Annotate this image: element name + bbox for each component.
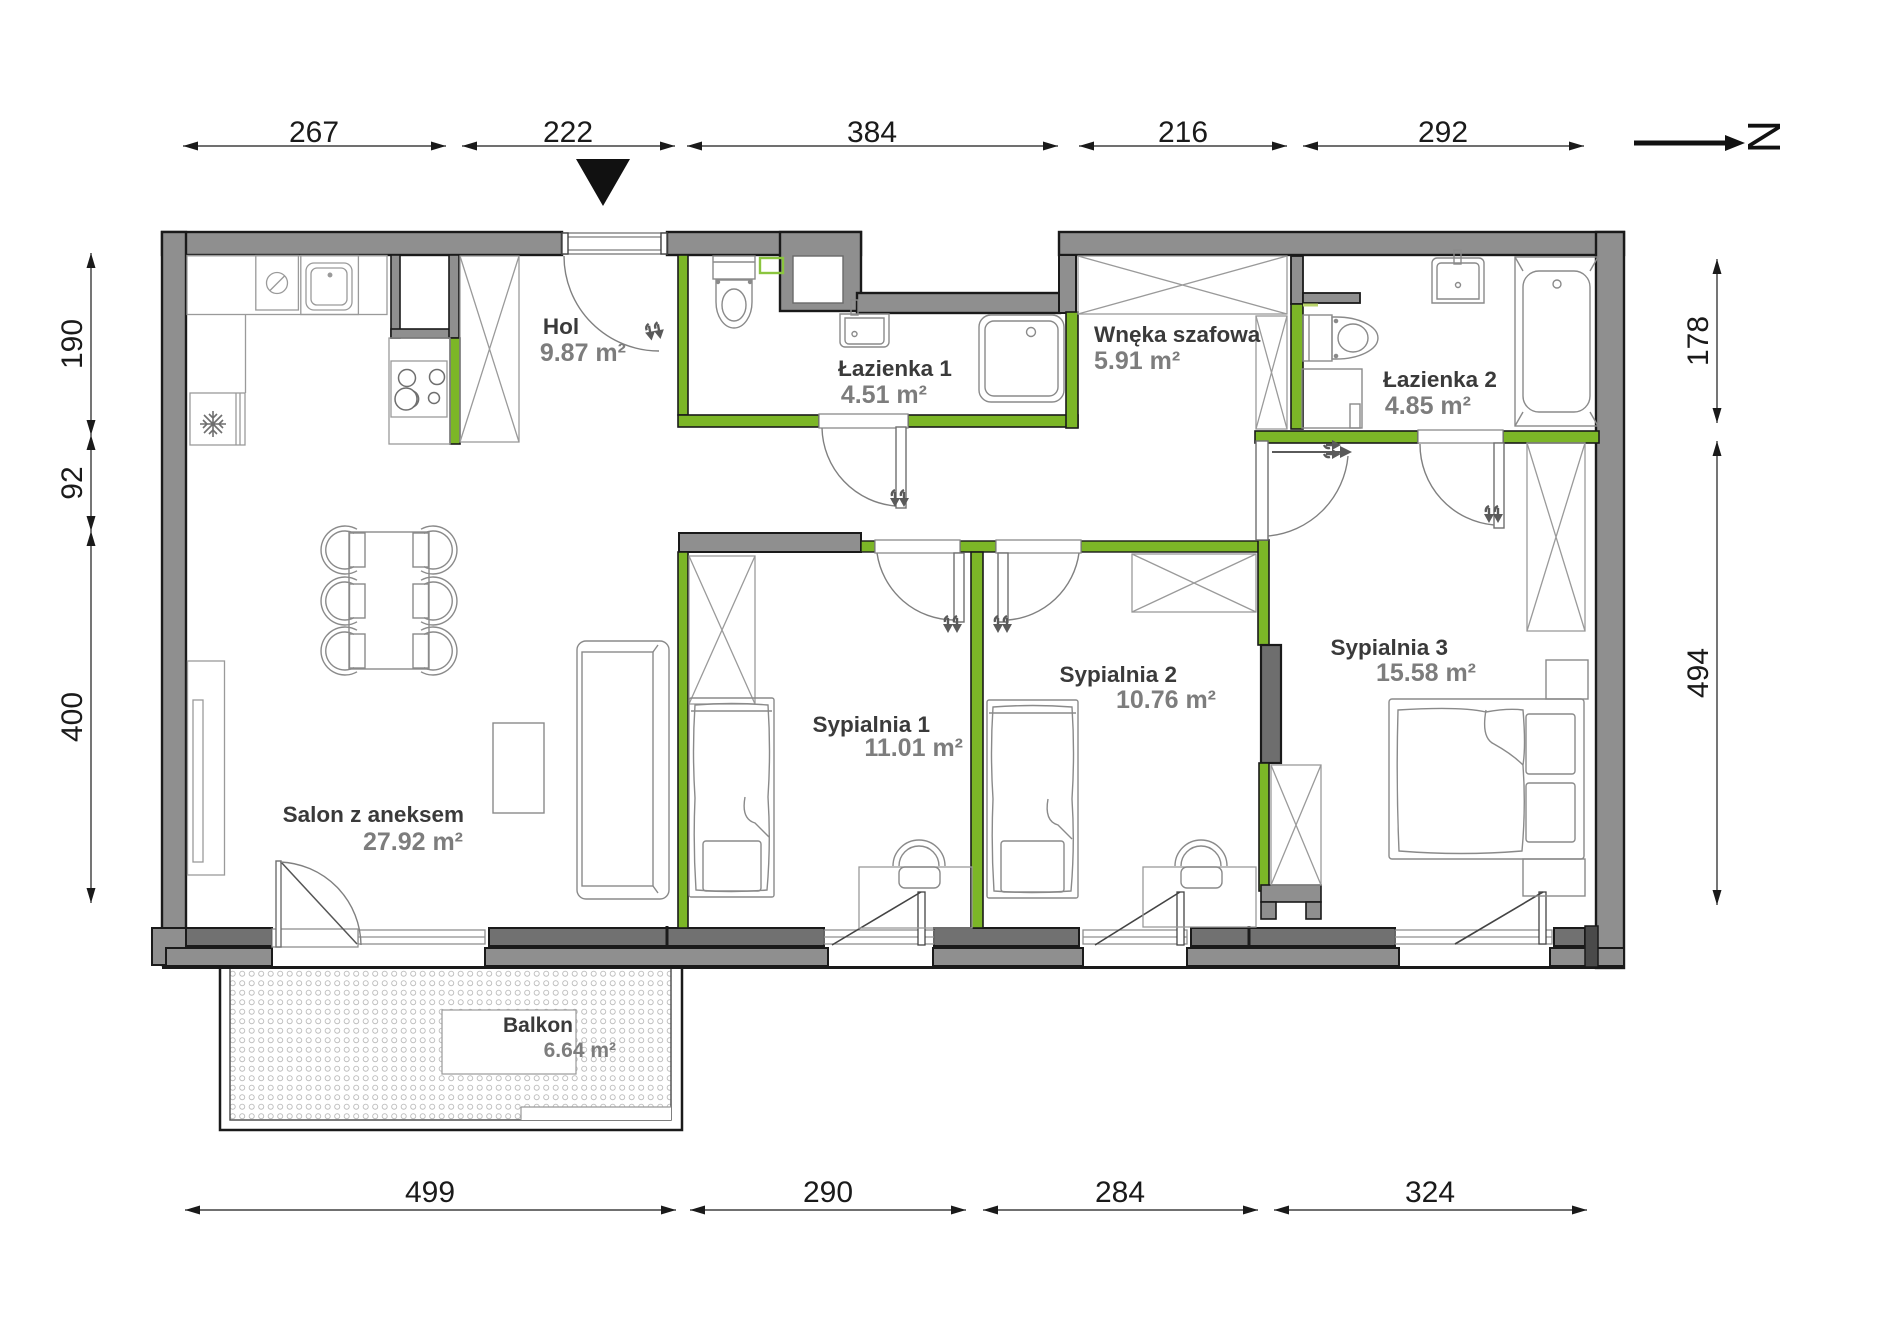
- svg-text:4.85 m²: 4.85 m²: [1385, 392, 1471, 420]
- svg-text:Sypialnia 3: Sypialnia 3: [1330, 635, 1448, 660]
- svg-text:400: 400: [56, 692, 89, 742]
- svg-text:Łazienka 2: Łazienka 2: [1383, 367, 1497, 392]
- svg-text:384: 384: [847, 116, 897, 149]
- svg-text:Hol: Hol: [543, 314, 579, 339]
- svg-text:Balkon: Balkon: [503, 1014, 573, 1037]
- svg-text:Salon z aneksem: Salon z aneksem: [283, 802, 464, 827]
- svg-text:494: 494: [1682, 648, 1715, 698]
- svg-text:284: 284: [1095, 1176, 1145, 1209]
- svg-text:292: 292: [1418, 116, 1468, 149]
- svg-text:324: 324: [1405, 1176, 1455, 1209]
- svg-text:92: 92: [56, 466, 89, 499]
- svg-text:Łazienka 1: Łazienka 1: [838, 356, 952, 381]
- svg-text:6.64 m²: 6.64 m²: [544, 1039, 616, 1062]
- svg-text:499: 499: [405, 1176, 455, 1209]
- svg-text:27.92 m²: 27.92 m²: [363, 828, 463, 856]
- svg-text:N: N: [1738, 120, 1790, 153]
- svg-text:267: 267: [289, 116, 339, 149]
- svg-text:15.58 m²: 15.58 m²: [1376, 659, 1476, 687]
- svg-text:11.01 m²: 11.01 m²: [864, 734, 963, 762]
- svg-text:5.91 m²: 5.91 m²: [1094, 347, 1180, 375]
- svg-text:Wnęka szafowa: Wnęka szafowa: [1094, 322, 1261, 347]
- svg-text:4.51 m²: 4.51 m²: [841, 381, 927, 409]
- svg-text:Sypialnia 2: Sypialnia 2: [1059, 662, 1177, 687]
- svg-text:178: 178: [1682, 316, 1715, 366]
- svg-text:9.87 m²: 9.87 m²: [540, 339, 626, 367]
- svg-text:216: 216: [1158, 116, 1208, 149]
- svg-text:290: 290: [803, 1176, 853, 1209]
- svg-text:222: 222: [543, 116, 593, 149]
- svg-text:10.76 m²: 10.76 m²: [1116, 686, 1216, 714]
- svg-text:190: 190: [56, 319, 89, 369]
